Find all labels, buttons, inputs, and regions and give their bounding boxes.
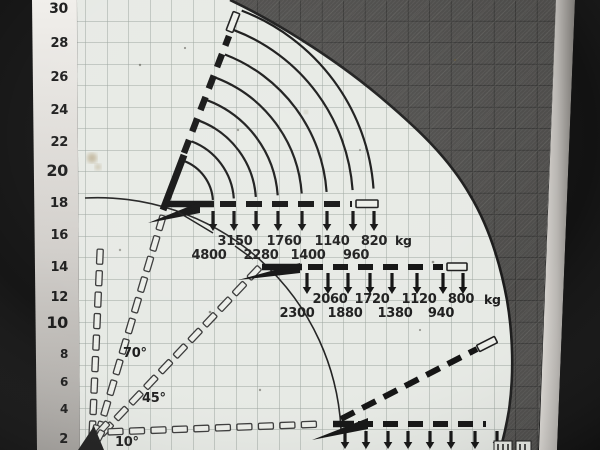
speck xyxy=(139,64,141,66)
height-axis-label: 8 xyxy=(60,347,68,361)
load-chart-svg: 315017601140820480022801400960kg20601720… xyxy=(0,0,600,450)
load-value-label: 1720 xyxy=(355,292,390,307)
hollow-dash-end xyxy=(447,263,467,271)
boom-outline-dash xyxy=(151,427,166,434)
height-axis-label: 16 xyxy=(51,228,69,243)
hollow-dash-end xyxy=(356,200,378,208)
boom-outline-dash xyxy=(93,335,100,350)
height-axis-label: 2 xyxy=(59,432,68,447)
height-axis-label: 6 xyxy=(60,375,68,389)
stain xyxy=(95,164,101,170)
height-axis-label: 4 xyxy=(60,402,68,416)
load-value-label: 1760 xyxy=(267,234,302,249)
height-axis-label: 24 xyxy=(51,103,69,118)
boom-outline-dash xyxy=(96,271,103,286)
load-value-label: 1400 xyxy=(291,248,326,263)
height-axis-label: 14 xyxy=(51,260,69,275)
boom-angle-label-10: 10° xyxy=(115,435,139,450)
load-value-label: 820 xyxy=(361,234,387,249)
boom-outline-dash xyxy=(94,313,101,328)
boom-outline-dash xyxy=(258,423,273,430)
boom-outline-dash xyxy=(129,428,144,435)
boom-outline-dash xyxy=(301,421,316,428)
unit-label: kg xyxy=(484,292,501,307)
cutoff-label-box xyxy=(516,441,531,450)
height-axis-strip xyxy=(32,0,80,450)
unit-label: kg xyxy=(395,233,412,248)
stain xyxy=(304,110,308,114)
load-value-label: 1140 xyxy=(315,234,350,249)
speck xyxy=(237,129,239,131)
boom-angle-label-45: 45° xyxy=(142,391,166,406)
boom-outline-dash xyxy=(90,399,97,414)
height-axis-label: 26 xyxy=(51,70,69,85)
height-axis-label: 30 xyxy=(49,1,68,17)
boom-outline-dash xyxy=(215,424,230,431)
speck xyxy=(359,149,361,151)
boom-outline-dash xyxy=(237,424,252,431)
photo-of-crane-load-chart-plate: 315017601140820480022801400960kg20601720… xyxy=(0,0,600,450)
cutoff-label-boxes xyxy=(494,441,531,450)
boom-outline-dash xyxy=(92,356,99,371)
boom-outline-dash xyxy=(172,426,187,433)
load-value-label: 4800 xyxy=(192,248,227,263)
height-axis-label: 18 xyxy=(50,195,68,211)
height-axis-label: 20 xyxy=(46,161,68,180)
speck xyxy=(209,311,212,314)
boom-angle-label-70: 70° xyxy=(123,346,147,361)
boom-outline-dash xyxy=(95,292,102,307)
height-axis-label: 22 xyxy=(51,135,69,150)
load-value-label: 2060 xyxy=(313,292,348,307)
speck xyxy=(432,261,435,264)
speck xyxy=(496,209,498,211)
boom-outline-dash xyxy=(194,425,209,432)
load-value-label: 1880 xyxy=(328,306,363,321)
height-axis-label: 28 xyxy=(51,36,69,51)
speck xyxy=(184,47,186,49)
speck xyxy=(259,389,261,391)
speck xyxy=(419,329,421,331)
height-axis-label: 12 xyxy=(51,290,69,305)
load-value-label: 940 xyxy=(428,306,454,321)
boom-outline-dash xyxy=(91,378,98,393)
load-value-label: 2280 xyxy=(244,248,279,263)
load-value-label: 3150 xyxy=(218,234,253,249)
load-value-label: 800 xyxy=(448,292,474,307)
stain xyxy=(87,153,97,163)
load-value-label: 2300 xyxy=(280,306,315,321)
height-axis-label: 10 xyxy=(46,313,68,332)
boom-outline-dash xyxy=(280,422,295,429)
boom-outline-dash xyxy=(108,428,123,435)
load-value-label: 960 xyxy=(343,248,369,263)
speck xyxy=(119,249,121,251)
speck xyxy=(454,59,456,61)
boom-outline-dash xyxy=(96,249,103,264)
load-value-label: 1380 xyxy=(378,306,413,321)
load-value-label: 1120 xyxy=(402,292,437,307)
